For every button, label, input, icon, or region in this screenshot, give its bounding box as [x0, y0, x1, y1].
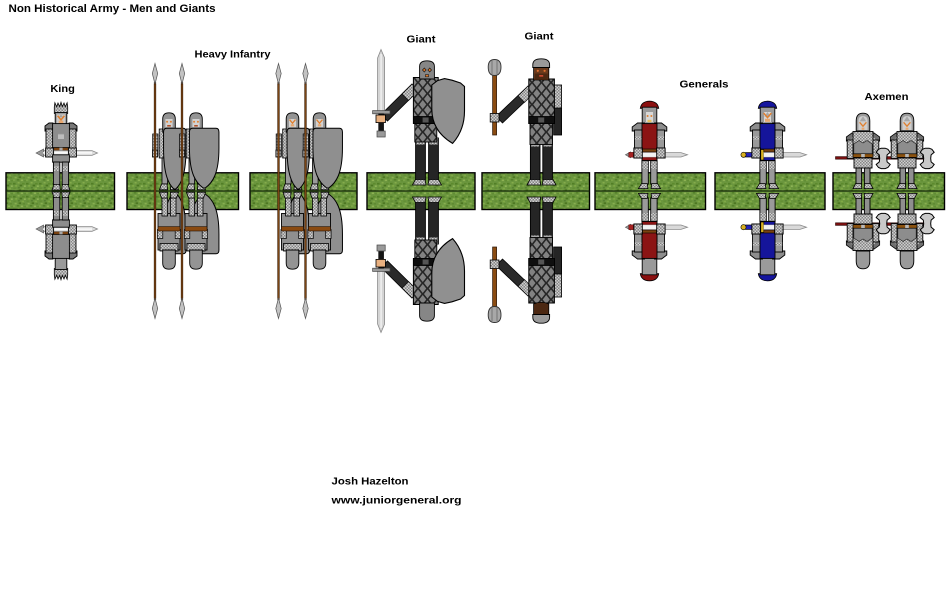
svg-text:Heavy Infantry: Heavy Infantry [195, 49, 271, 61]
svg-text:Giant: Giant [525, 31, 555, 43]
svg-text:Giant: Giant [407, 34, 437, 46]
svg-text:Axemen: Axemen [865, 91, 909, 103]
svg-text:Generals: Generals [680, 79, 729, 91]
svg-text:King: King [50, 83, 75, 95]
svg-text:Non Historical Army - Men and: Non Historical Army - Men and Giants [9, 3, 216, 15]
svg-text:www.juniorgeneral.org: www.juniorgeneral.org [330, 495, 461, 507]
svg-text:Josh Hazelton: Josh Hazelton [332, 475, 409, 487]
